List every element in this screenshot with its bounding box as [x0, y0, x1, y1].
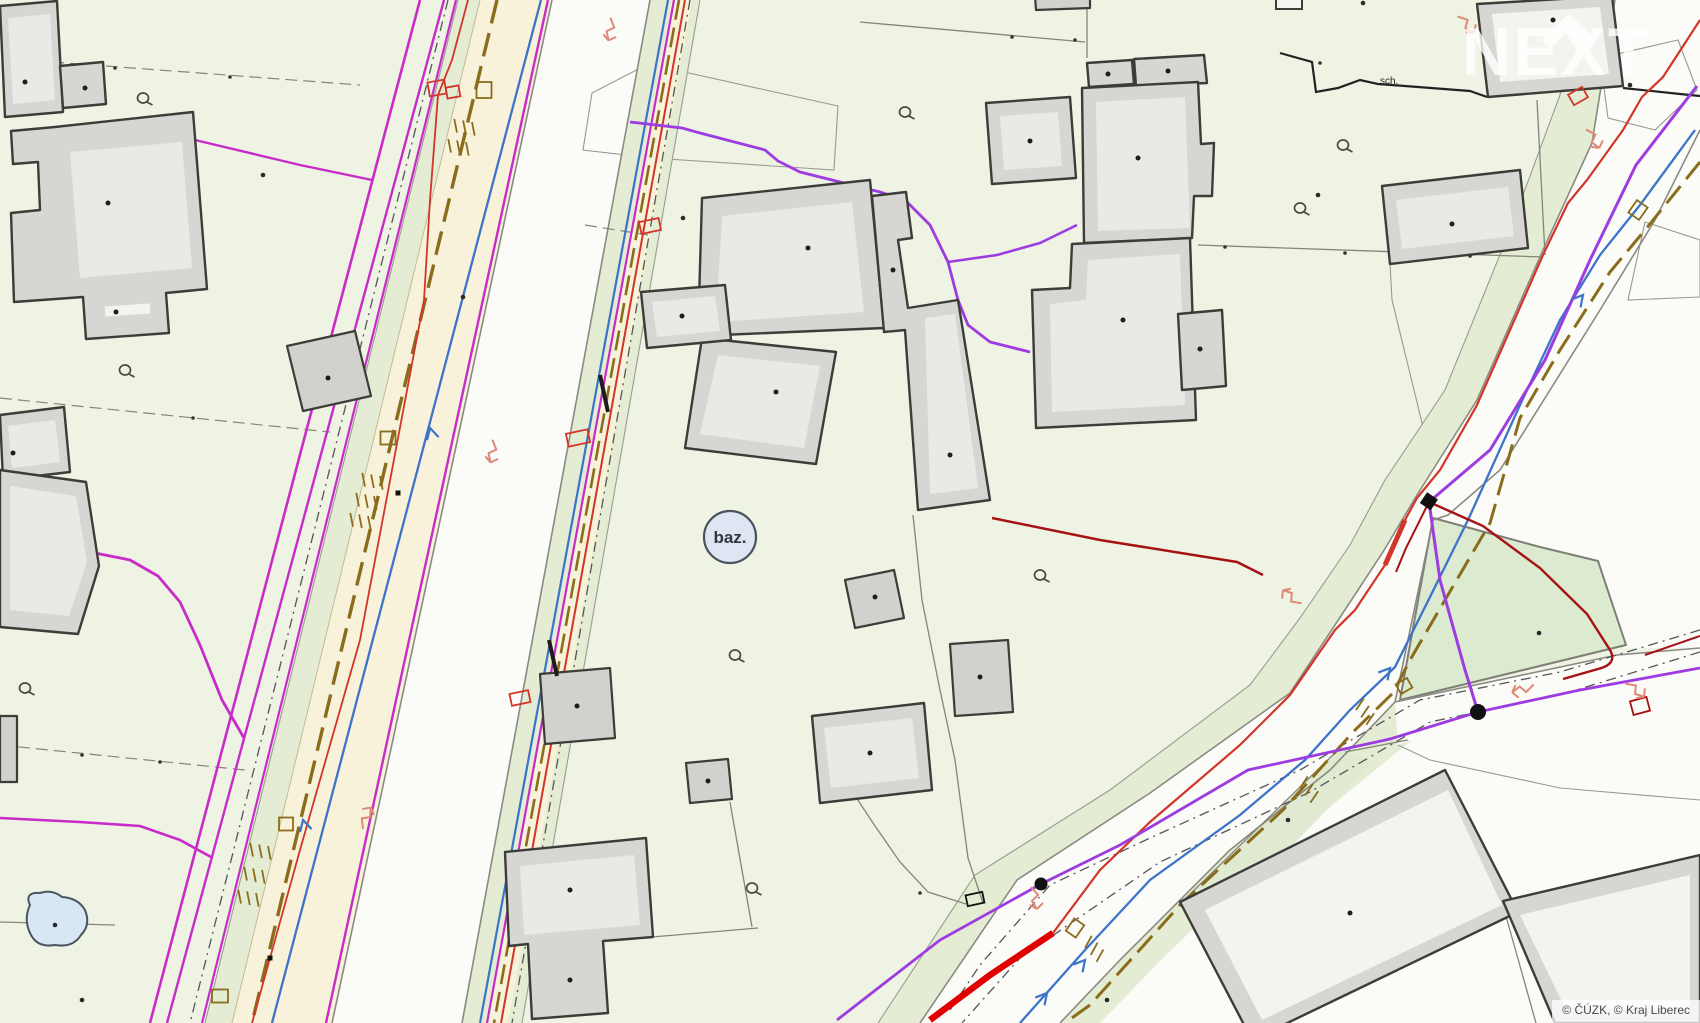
parcel-dot: [681, 216, 686, 221]
boundary-node-dot: [1073, 38, 1077, 42]
pool-label: baz.: [713, 528, 746, 547]
building-dot: [868, 751, 873, 756]
building-dot: [978, 675, 983, 680]
pool-symbol: baz.: [704, 511, 756, 563]
building-dot: [1348, 911, 1353, 916]
building: [287, 331, 371, 411]
building-dot: [114, 310, 119, 315]
valve-symbol: [268, 956, 273, 961]
parcel-dot: [1537, 631, 1542, 636]
boundary-node-dot: [1223, 245, 1227, 249]
building: [0, 716, 17, 782]
building: [1087, 60, 1134, 87]
boundary-node-dot: [158, 760, 162, 764]
building-dot: [806, 246, 811, 251]
building: [1035, 0, 1090, 10]
building-dot: [1198, 347, 1203, 352]
building-dot: [706, 779, 711, 784]
building-dot: [1450, 222, 1455, 227]
building-dot: [1106, 72, 1111, 77]
building: [0, 1, 63, 117]
building-dot: [23, 80, 28, 85]
parcel-dot: [1286, 818, 1291, 823]
building: [685, 338, 836, 464]
map-viewport[interactable]: baz. sch. NEXT © ČÚZK, © Kraj Liberec: [0, 0, 1700, 1023]
boundary-node-dot: [1468, 254, 1472, 258]
building: [641, 285, 731, 348]
building-dot: [568, 978, 573, 983]
parcel-dot: [53, 923, 58, 928]
building-dot: [1028, 139, 1033, 144]
parcel-dot: [80, 998, 85, 1003]
boundary-node-dot: [1010, 35, 1014, 39]
building-dot: [568, 888, 573, 893]
building: [0, 470, 99, 634]
building-dot: [326, 376, 331, 381]
boundary-node-dot: [1318, 61, 1322, 65]
building-dot: [106, 201, 111, 206]
building: [60, 62, 106, 108]
valve-symbol: [396, 491, 401, 496]
boundary-node-dot: [228, 75, 232, 79]
building-dot: [948, 453, 953, 458]
building: [0, 407, 70, 480]
boundary-node-dot: [191, 416, 195, 420]
parcel-dot: [461, 295, 466, 300]
building: [1276, 0, 1302, 9]
parcel-dot: [1361, 1, 1366, 6]
parcel-dot: [1316, 193, 1321, 198]
boundary-node-dot: [1343, 251, 1347, 255]
building-dot: [1166, 69, 1171, 74]
parcel-dot: [261, 173, 266, 178]
boundary-node-dot: [113, 66, 117, 70]
building-dot: [575, 704, 580, 709]
boundary-node-dot: [918, 891, 922, 895]
building-dot: [1136, 156, 1141, 161]
boundary-node-dot: [80, 753, 84, 757]
building-dot: [891, 268, 896, 273]
building-dot: [873, 595, 878, 600]
building-dot: [680, 314, 685, 319]
watermark-logo: NEXT: [1462, 18, 1700, 86]
map-attribution: © ČÚZK, © Kraj Liberec: [1552, 1000, 1700, 1023]
building-dot: [83, 86, 88, 91]
building-dot: [11, 451, 16, 456]
node-dot-marker: [1035, 878, 1048, 891]
building: [1382, 170, 1528, 264]
building-dot: [774, 390, 779, 395]
parcel-dot: [1105, 998, 1110, 1003]
building-dot: [1121, 318, 1126, 323]
cadastral-map: baz. sch.: [0, 0, 1700, 1023]
node-dot-marker: [1470, 704, 1486, 720]
stairs-label: sch.: [1380, 76, 1398, 87]
